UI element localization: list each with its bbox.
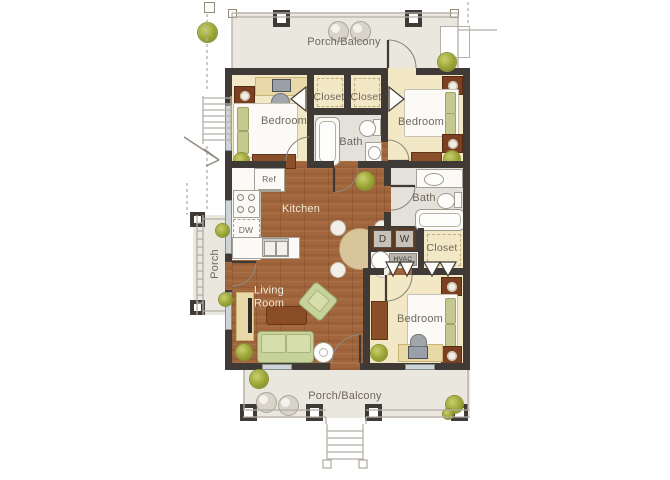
porch-chair	[256, 392, 277, 413]
bath-center-label: Bath	[339, 136, 362, 148]
dryer: D	[373, 230, 392, 248]
porch-bottom-label: Porch/Balcony	[308, 390, 382, 402]
hvac-label: HVAC	[394, 256, 413, 263]
door-threshold	[225, 262, 232, 290]
porch-column	[228, 9, 237, 18]
plant-icon	[438, 53, 456, 71]
stair-landing	[204, 2, 215, 13]
exterior-stairs-bottom	[323, 424, 367, 468]
plant-icon	[198, 23, 217, 42]
pillow	[237, 107, 249, 131]
bedroom-bottom-label: Bedroom	[397, 313, 443, 325]
stove-burner-icon	[237, 206, 244, 213]
interior-wall	[418, 228, 424, 272]
plant-icon	[216, 224, 229, 237]
sink-basin	[276, 241, 288, 256]
interior-wall	[412, 268, 463, 275]
door-threshold	[330, 363, 360, 370]
plant-icon	[356, 172, 374, 190]
interior-wall	[307, 108, 388, 115]
desk-chair	[410, 334, 427, 347]
porch-side-label: Porch	[209, 249, 221, 279]
stove-burner-icon	[237, 194, 244, 201]
interior-wall	[225, 161, 286, 168]
sofa-cushion	[286, 334, 311, 353]
dryer-label: D	[379, 234, 386, 245]
stove-burner-icon	[248, 206, 255, 213]
pillow	[445, 92, 456, 114]
floor-plan: D W HVAC	[0, 0, 670, 480]
interior-wall	[310, 161, 334, 168]
porch-column	[190, 300, 205, 315]
porch-column	[240, 404, 257, 421]
window	[262, 364, 292, 370]
sink-basin	[368, 146, 381, 160]
refrigerator-label: Ref	[262, 174, 276, 184]
washer-label: W	[400, 234, 409, 245]
side-table-center	[319, 348, 328, 357]
hvac-unit: HVAC	[389, 253, 417, 266]
sink-basin	[424, 173, 444, 186]
stove-burner-icon	[248, 194, 255, 201]
living-room-label: Living Room	[254, 284, 302, 309]
interior-wall	[363, 268, 370, 363]
porch-top-label: Porch/Balcony	[307, 36, 381, 48]
exterior-wall	[463, 68, 470, 370]
pillow	[445, 324, 456, 348]
toilet-bowl	[359, 120, 376, 137]
porch-column	[306, 404, 323, 421]
tv-icon	[248, 298, 252, 333]
sofa-cushion	[261, 334, 286, 353]
toilet-tank	[454, 192, 462, 208]
window	[405, 364, 435, 370]
closet-bottom-label: Closet	[427, 242, 458, 254]
porch-column	[273, 10, 290, 27]
plant-icon	[236, 344, 252, 360]
stair-direction-arrow	[184, 137, 219, 166]
dresser	[371, 301, 388, 340]
toilet-bowl	[437, 193, 455, 209]
porch-column	[450, 9, 459, 18]
door-threshold	[381, 140, 388, 161]
computer-monitor-icon	[272, 79, 291, 92]
window	[225, 105, 232, 151]
bedroom-top-left-label: Bedroom	[261, 115, 307, 127]
exterior-wall	[225, 68, 388, 75]
porch-column	[365, 404, 382, 421]
bath-right-label: Bath	[412, 192, 435, 204]
closet-top-left-label: Closet	[314, 91, 345, 103]
plant-icon	[371, 345, 387, 361]
pillow	[237, 131, 249, 154]
door-threshold	[384, 186, 391, 212]
dishwasher-label: DW	[239, 225, 254, 235]
porch-column	[190, 212, 205, 227]
interior-wall	[384, 168, 391, 186]
closet-top-right-label: Closet	[351, 91, 382, 103]
dining-chair	[330, 220, 346, 236]
kitchen-label: Kitchen	[282, 203, 320, 215]
plant-icon	[250, 370, 268, 388]
refrigerator-handle	[258, 189, 281, 191]
interior-wall	[384, 212, 391, 230]
door-threshold	[388, 68, 416, 75]
porch-column	[405, 10, 422, 27]
plant-icon	[219, 293, 232, 306]
interior-wall	[358, 161, 463, 168]
plant-icon	[443, 409, 453, 419]
pillow	[445, 298, 456, 324]
computer-monitor-icon	[408, 346, 428, 359]
interior-wall	[307, 75, 314, 168]
dining-chair	[330, 262, 346, 278]
porch-chair	[278, 395, 299, 416]
bedroom-top-right-label: Bedroom	[398, 116, 444, 128]
pillow	[445, 113, 456, 135]
sink-basin	[264, 241, 276, 256]
washer: W	[395, 230, 414, 248]
bathtub	[315, 117, 340, 166]
